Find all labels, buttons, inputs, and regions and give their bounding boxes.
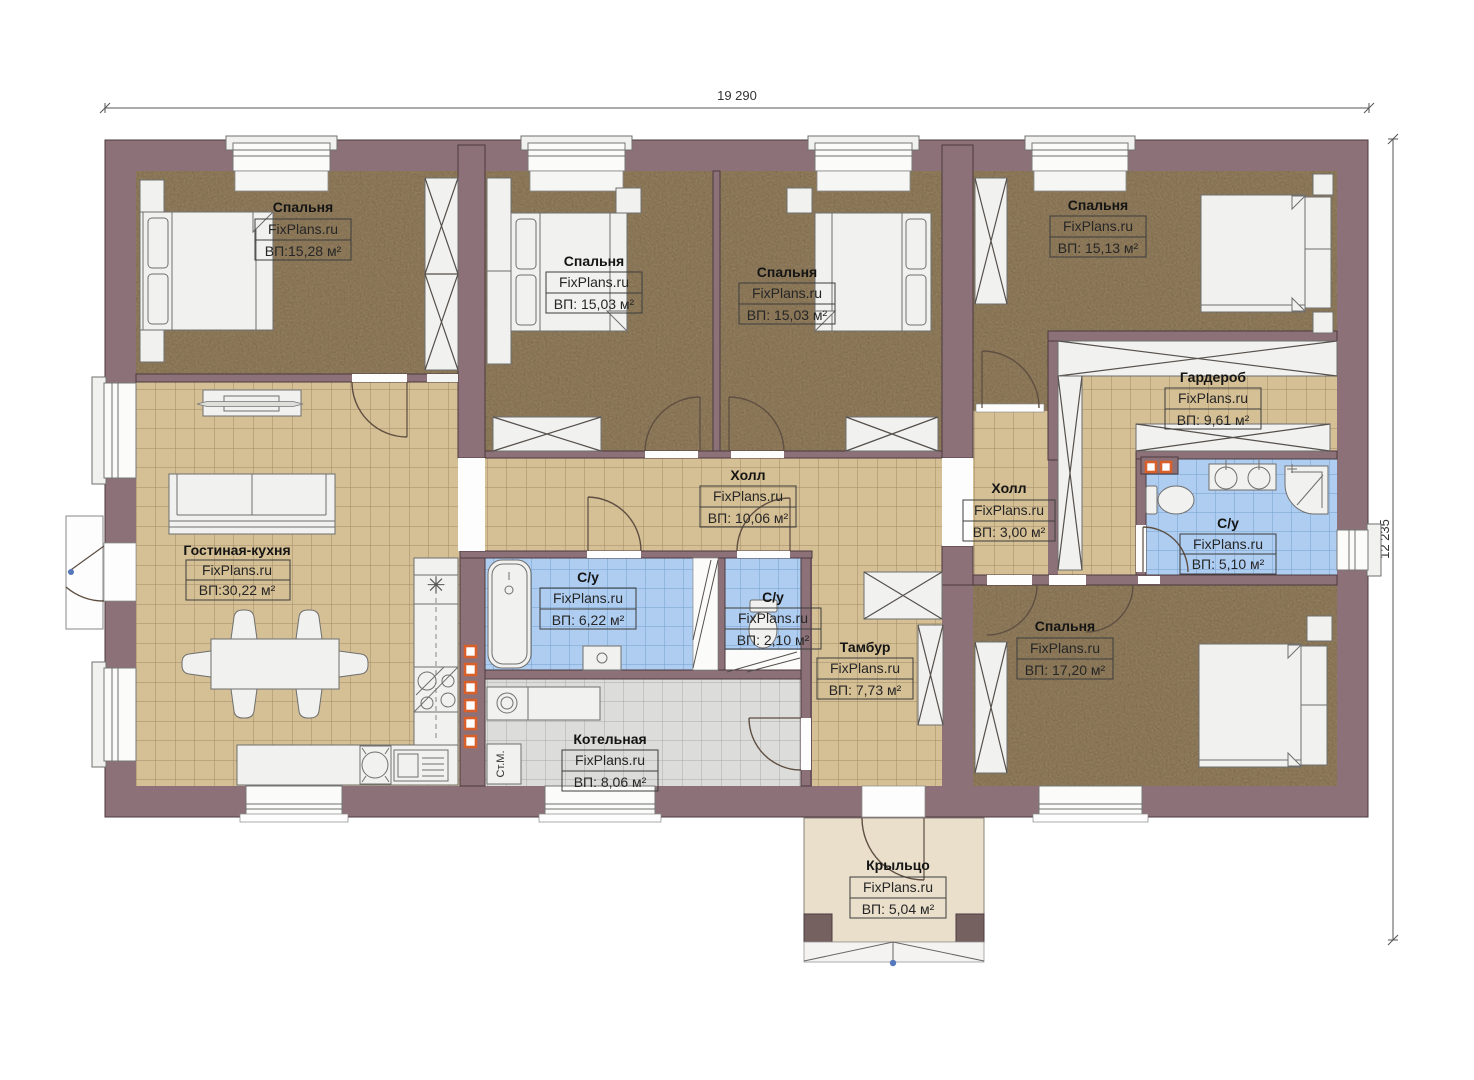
svg-text:ВП: 10,06 м²: ВП: 10,06 м² <box>708 510 789 526</box>
svg-text:С/у: С/у <box>577 569 599 585</box>
svg-text:FixPlans.ru: FixPlans.ru <box>863 879 933 895</box>
svg-text:FixPlans.ru: FixPlans.ru <box>559 274 629 290</box>
svg-text:Спальня: Спальня <box>757 264 817 280</box>
svg-text:FixPlans.ru: FixPlans.ru <box>738 610 808 626</box>
svg-text:✳: ✳ <box>426 572 445 598</box>
svg-text:FixPlans.ru: FixPlans.ru <box>974 502 1044 518</box>
svg-text:ВП: 3,00 м²: ВП: 3,00 м² <box>973 524 1046 540</box>
svg-text:Тамбур: Тамбур <box>840 639 891 655</box>
svg-text:ВП: 6,22 м²: ВП: 6,22 м² <box>552 612 625 628</box>
svg-text:FixPlans.ru: FixPlans.ru <box>1178 390 1248 406</box>
svg-text:Котельная: Котельная <box>573 731 646 747</box>
svg-text:ВП: 5,04 м²: ВП: 5,04 м² <box>862 901 935 917</box>
svg-text:FixPlans.ru: FixPlans.ru <box>575 752 645 768</box>
svg-text:Холл: Холл <box>991 480 1026 496</box>
svg-text:Спальня: Спальня <box>564 253 624 269</box>
svg-text:Спальня: Спальня <box>273 199 333 215</box>
svg-text:ВП: 15,03 м²: ВП: 15,03 м² <box>554 296 635 312</box>
svg-text:ВП: 15,03 м²: ВП: 15,03 м² <box>747 307 828 323</box>
svg-text:С/у: С/у <box>1217 515 1239 531</box>
svg-text:ВП: 17,20 м²: ВП: 17,20 м² <box>1025 662 1106 678</box>
svg-text:Ст.М.: Ст.М. <box>495 750 507 777</box>
svg-text:ВП:30,22 м²: ВП:30,22 м² <box>199 582 276 598</box>
svg-text:Гардероб: Гардероб <box>1180 369 1247 385</box>
svg-text:FixPlans.ru: FixPlans.ru <box>1030 640 1100 656</box>
svg-text:ВП: 15,13 м²: ВП: 15,13 м² <box>1058 240 1139 256</box>
svg-text:FixPlans.ru: FixPlans.ru <box>1193 536 1263 552</box>
svg-text:19 290: 19 290 <box>717 88 757 103</box>
svg-text:FixPlans.ru: FixPlans.ru <box>268 221 338 237</box>
svg-text:FixPlans.ru: FixPlans.ru <box>830 660 900 676</box>
svg-text:ВП: 9,61 м²: ВП: 9,61 м² <box>1177 412 1250 428</box>
svg-text:FixPlans.ru: FixPlans.ru <box>752 285 822 301</box>
svg-text:Холл: Холл <box>730 467 765 483</box>
svg-text:Крыльцо: Крыльцо <box>866 857 930 873</box>
svg-text:С/у: С/у <box>762 589 784 605</box>
svg-text:ВП: 8,06 м²: ВП: 8,06 м² <box>574 774 647 790</box>
svg-text:ВП:15,28 м²: ВП:15,28 м² <box>265 243 342 259</box>
svg-text:ВП: 2,10 м²: ВП: 2,10 м² <box>737 632 810 648</box>
svg-text:FixPlans.ru: FixPlans.ru <box>1063 218 1133 234</box>
svg-text:FixPlans.ru: FixPlans.ru <box>202 562 272 578</box>
svg-text:ВП: 5,10 м²: ВП: 5,10 м² <box>1192 556 1265 572</box>
svg-text:Спальня: Спальня <box>1035 618 1095 634</box>
svg-text:FixPlans.ru: FixPlans.ru <box>553 590 623 606</box>
svg-text:FixPlans.ru: FixPlans.ru <box>713 488 783 504</box>
svg-text:Гостиная-кухня: Гостиная-кухня <box>183 542 290 558</box>
svg-text:Спальня: Спальня <box>1068 197 1128 213</box>
svg-text:ВП: 7,73 м²: ВП: 7,73 м² <box>829 682 902 698</box>
